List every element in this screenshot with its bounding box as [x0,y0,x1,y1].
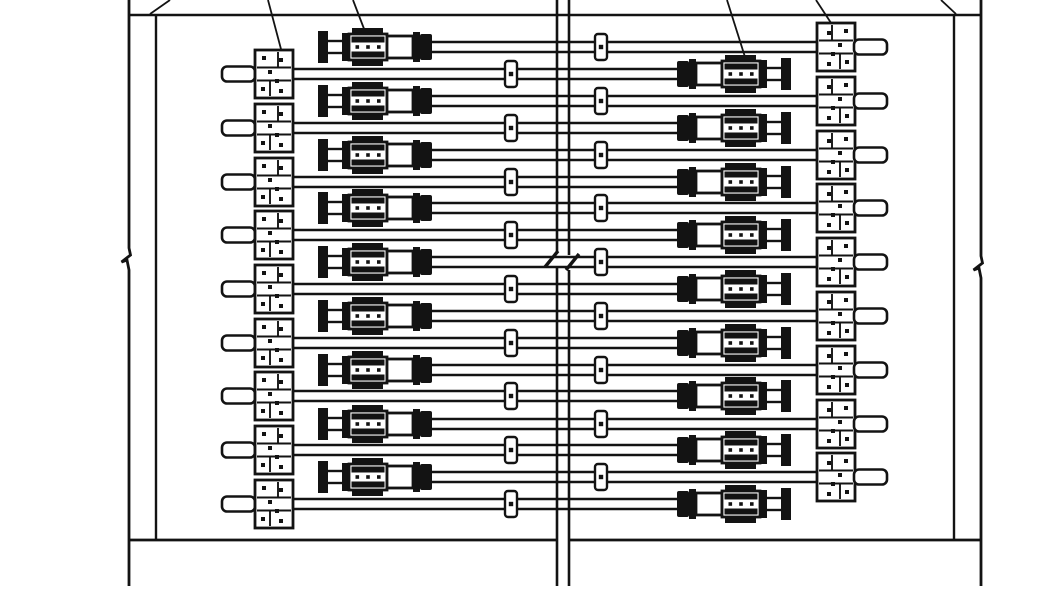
turnbuckle-dot [739,180,743,184]
anchor-plate-body [817,184,855,232]
rod-assembly-row [222,211,791,259]
turnbuckle-dot [739,502,743,506]
anchor-rod-stub [222,67,255,82]
turnbuckle [677,109,791,147]
anchor-plate [817,346,855,394]
turnbuckle [318,189,432,227]
anchor-bolt-dot [261,517,265,521]
rod-coupler-pin [599,45,603,49]
anchor-bolt-dot [844,406,848,410]
anchor-bolt-dot [844,244,848,248]
rod-assembly-row [318,346,887,394]
turnbuckle-open-body [696,439,722,461]
turnbuckle-block-band [725,172,758,178]
rod-coupler [595,411,607,437]
turnbuckle-end-nut [781,112,791,144]
anchor-bolt-dot [262,378,266,382]
anchor-plate-body [817,400,855,448]
turnbuckle-block-band [352,306,385,312]
turnbuckle-open-body [387,413,413,435]
turnbuckle-dot [366,314,370,318]
anchor-bolt-dot [827,62,831,66]
anchor-bolt-dot [279,358,283,362]
anchor-bolt-dot [831,160,835,164]
anchor-plate [817,400,855,448]
turnbuckle-dot [366,260,370,264]
turnbuckle-block-band [352,252,385,258]
anchor-plate [817,131,855,179]
rod-assembly-rows [222,23,887,528]
anchor-bolt-dot [279,112,283,116]
turnbuckle-block-band [352,375,385,381]
turnbuckle-end-nut [781,488,791,520]
engineering-drawing-page [0,0,1064,600]
turnbuckle [677,55,791,93]
turnbuckle [677,163,791,201]
anchor-rod-stub [854,40,887,55]
turnbuckle-dot [356,475,360,479]
anchor-bolt-dot [845,168,849,172]
turnbuckle-dot [739,287,743,291]
anchor-bolt-dot [827,408,831,412]
anchor-bolt-dot [275,348,279,352]
rod-assembly-row [222,319,791,367]
turnbuckle-dot [366,45,370,49]
anchor-bolt-dot [275,401,279,405]
turnbuckle-dot [377,475,381,479]
turnbuckle-end-nut [781,273,791,305]
turnbuckle-dot [366,368,370,372]
anchor-bolt-dot [262,486,266,490]
turnbuckle-open-body [387,90,413,112]
anchor-plate-body [817,23,855,71]
anchor-bolt-dot [275,509,279,513]
turnbuckle-block-band [352,213,385,219]
rod-assembly-row [222,50,791,98]
turnbuckle-collar [760,221,767,249]
anchor-bolt-dot [268,285,272,289]
anchor-plate [817,238,855,286]
anchor-bolt-dot [845,60,849,64]
turnbuckle [677,431,791,469]
anchor-bolt-dot [827,300,831,304]
anchor-bolt-dot [845,383,849,387]
rod-coupler-pin [599,99,603,103]
rod-coupler [505,491,517,517]
anchor-bolt-dot [279,465,283,469]
turnbuckle-dot [377,314,381,318]
turnbuckle-end-nut [781,219,791,251]
rod-coupler [505,169,517,195]
turnbuckle-block-band [352,414,385,420]
anchor-bolt-dot [827,85,831,89]
turnbuckle-collar [760,60,767,88]
anchor-bolt-dot [279,273,283,277]
anchor-plate [817,184,855,232]
turnbuckle-block-band [725,440,758,446]
anchor-plate [255,211,293,259]
anchor-bolt-dot [279,143,283,147]
turnbuckle-nut [420,357,432,383]
anchor-bolt-dot [831,482,835,486]
anchor-bolt-dot [268,124,272,128]
turnbuckle-block-band [725,386,758,392]
turnbuckle-collar [760,436,767,464]
turnbuckle-nut [677,437,689,463]
rod-coupler [595,34,607,60]
rod-coupler-pin [599,206,603,210]
turnbuckle [677,324,791,362]
anchor-bolt-dot [831,52,835,56]
anchor-plate [255,480,293,528]
rod-coupler [505,222,517,248]
turnbuckle-dot [739,233,743,237]
turnbuckle-open-body [696,171,722,193]
anchor-bolt-dot [268,231,272,235]
rod-assembly-row [318,184,887,232]
turnbuckle-block-band [352,145,385,151]
anchor-bolt-dot [275,455,279,459]
turnbuckle-open-body [387,36,413,58]
anchor-bolt-dot [827,116,831,120]
anchor-rod-stub [854,255,887,270]
anchor-bolt-dot [831,213,835,217]
turnbuckle-dot [356,45,360,49]
turnbuckle-end-nut [781,58,791,90]
anchor-bolt-dot [845,275,849,279]
turnbuckle-block-band [352,198,385,204]
rod-coupler [505,330,517,356]
joint-break-tick-left [545,251,558,267]
turnbuckle [318,405,432,443]
turnbuckle-end-nut [781,166,791,198]
rod-assembly-row [222,426,791,474]
anchor-plate-body [817,131,855,179]
anchor-rod-stub [854,470,887,485]
anchor-bolt-dot [262,271,266,275]
anchor-bolt-dot [279,519,283,523]
turnbuckle-collar [413,247,420,277]
turnbuckle-block-band [725,294,758,300]
anchor-bolt-dot [845,437,849,441]
anchor-bolt-dot [844,190,848,194]
turnbuckle-dot [377,368,381,372]
turnbuckle-dot [750,126,754,130]
leader-line-1 [150,0,170,14]
turnbuckle-dot [729,394,733,398]
leader-line-6 [941,0,956,14]
turnbuckle-open-body [696,224,722,246]
turnbuckle-dot [729,233,733,237]
leader-line-4 [727,0,745,57]
turnbuckle-collar [413,193,420,223]
anchor-bolt-dot [279,166,283,170]
rod-assembly-row [318,23,887,71]
anchor-bolt-dot [838,151,842,155]
anchor-rod-stub [854,201,887,216]
anchor-rod-stub [222,228,255,243]
anchor-bolt-dot [261,248,265,252]
anchor-plate-body [255,372,293,420]
rod-coupler [595,195,607,221]
anchor-bolt-dot [268,178,272,182]
anchor-bolt-dot [279,380,283,384]
turnbuckle-end-nut [318,246,328,278]
rod-coupler-pin [509,126,513,130]
anchor-bolt-dot [261,141,265,145]
anchor-bolt-dot [262,325,266,329]
anchor-plate-body [817,238,855,286]
turnbuckle-open-body [696,332,722,354]
turnbuckle-nut [677,491,689,517]
anchor-bolt-dot [838,420,842,424]
anchor-bolt-dot [827,139,831,143]
turnbuckle-collar [760,114,767,142]
turnbuckle-block-band [352,37,385,43]
anchor-plate [255,104,293,152]
turnbuckle [677,216,791,254]
turnbuckle-end-nut [318,139,328,171]
turnbuckle-collar [413,409,420,439]
turnbuckle-dot [750,341,754,345]
turnbuckle-nut [420,411,432,437]
anchor-plate-body [255,480,293,528]
turnbuckle-end-nut [318,192,328,224]
turnbuckle-dot [377,206,381,210]
turnbuckle-end-nut [318,85,328,117]
turnbuckle-block-band [725,187,758,193]
anchor-bolt-dot [845,114,849,118]
turnbuckle-open-body [696,385,722,407]
rod-assembly-row [318,77,887,125]
anchor-bolt-dot [275,187,279,191]
turnbuckle-nut [420,34,432,60]
turnbuckle-block-band [725,118,758,124]
anchor-bolt-dot [827,492,831,496]
turnbuckle-dot [366,153,370,157]
anchor-plate [817,453,855,501]
rod-coupler-pin [509,502,513,506]
turnbuckle-dot [356,368,360,372]
anchor-bolt-dot [279,250,283,254]
turnbuckle-end-nut [318,408,328,440]
anchor-bolt-dot [261,463,265,467]
anchor-bolt-dot [279,434,283,438]
turnbuckle-block-band [352,482,385,488]
turnbuckle-open-body [696,278,722,300]
rod-assembly-row [222,265,791,313]
turnbuckle [318,82,432,120]
anchor-bolt-dot [827,170,831,174]
anchor-plate-body [255,265,293,313]
rod-coupler [505,61,517,87]
anchor-bolt-dot [279,58,283,62]
turnbuckle-nut [677,169,689,195]
turnbuckle-block-band [725,348,758,354]
turnbuckle-nut [677,115,689,141]
turnbuckle-dot [739,341,743,345]
turnbuckle-nut [420,88,432,114]
turnbuckle [318,136,432,174]
turnbuckle-nut [420,195,432,221]
anchor-bolt-dot [261,409,265,413]
turnbuckle-nut [420,249,432,275]
turnbuckle-nut [677,222,689,248]
turnbuckle-nut [420,464,432,490]
turnbuckle-dot [366,206,370,210]
anchor-bolt-dot [262,164,266,168]
rod-coupler-pin [599,314,603,318]
turnbuckle-dot [750,180,754,184]
rod-coupler [595,142,607,168]
turnbuckle-block-band [352,467,385,473]
turnbuckle-block-band [352,321,385,327]
turnbuckle-dot [729,126,733,130]
anchor-bolt-dot [831,321,835,325]
rod-coupler-pin [509,72,513,76]
anchor-bolt-dot [827,439,831,443]
anchor-plate-body [817,346,855,394]
turnbuckle-block-band [352,160,385,166]
turnbuckle [318,458,432,496]
anchor-rod-stub [222,121,255,136]
anchor-bolt-dot [831,106,835,110]
turnbuckle-dot [739,448,743,452]
turnbuckle-block-band [725,333,758,339]
anchor-bolt-dot [262,432,266,436]
turnbuckle-open-body [387,305,413,327]
turnbuckle [677,485,791,523]
anchor-bolt-dot [275,79,279,83]
anchor-bolt-dot [844,29,848,33]
anchor-plate-body [255,158,293,206]
anchor-bolt-dot [279,327,283,331]
turnbuckle-block-band [725,494,758,500]
turnbuckle-collar [413,301,420,331]
anchor-bolt-dot [845,490,849,494]
turnbuckle-block-band [352,106,385,112]
anchor-bolt-dot [261,87,265,91]
turnbuckle-end-nut [318,461,328,493]
turnbuckle-dot [739,72,743,76]
anchor-bolt-dot [262,217,266,221]
turnbuckle-block-band [352,360,385,366]
rod-coupler-pin [509,180,513,184]
rod-assembly-row [222,480,791,528]
turnbuckle [318,351,432,389]
turnbuckle-block-band [725,455,758,461]
anchor-bolt-dot [279,411,283,415]
anchor-plate-body [817,77,855,125]
turnbuckle-collar [413,32,420,62]
anchor-bolt-dot [838,97,842,101]
turnbuckle-open-body [387,359,413,381]
anchor-plate [255,50,293,98]
turnbuckle-open-body [387,144,413,166]
rod-coupler-pin [509,448,513,452]
anchor-rod-stub [854,417,887,432]
turnbuckle-dot [729,448,733,452]
anchor-bolt-dot [838,204,842,208]
anchor-plate-body [255,211,293,259]
anchor-bolt-dot [275,294,279,298]
anchor-bolt-dot [275,240,279,244]
right-outer-line [974,0,983,586]
rod-coupler [595,88,607,114]
turnbuckle-nut [420,142,432,168]
turnbuckle-collar [760,275,767,303]
rod-coupler-pin [509,233,513,237]
turnbuckle-collar [760,382,767,410]
anchor-rod-stub [854,309,887,324]
anchor-plate-body [817,453,855,501]
turnbuckle-end-nut [318,300,328,332]
turnbuckle-dot [750,233,754,237]
anchor-bolt-dot [831,429,835,433]
turnbuckle-dot [377,153,381,157]
rod-coupler-pin [599,260,603,264]
turnbuckle-block-band [352,267,385,273]
turnbuckle-end-nut [781,434,791,466]
turnbuckle-dot [750,287,754,291]
rod-coupler [505,437,517,463]
rod-assembly-row [318,292,887,340]
rod-coupler [505,276,517,302]
turnbuckle-block-band [725,64,758,70]
anchor-bolt-dot [827,246,831,250]
turnbuckle-open-body [387,197,413,219]
anchor-plate [255,319,293,367]
turnbuckle-block-band [725,509,758,515]
anchor-rod-stub [222,497,255,512]
rod-coupler [595,249,607,275]
turnbuckle-dot [750,502,754,506]
anchor-bolt-dot [827,223,831,227]
anchor-bolt-dot [261,195,265,199]
turnbuckle-dot [729,341,733,345]
anchor-bolt-dot [844,83,848,87]
anchor-plate-body [817,292,855,340]
rod-assembly-row [222,104,791,152]
anchor-plate [817,23,855,71]
anchor-bolt-dot [844,298,848,302]
anchor-plate-body [255,104,293,152]
anchor-bolt-dot [279,197,283,201]
anchor-plate [255,426,293,474]
turnbuckle-dot [377,45,381,49]
turnbuckle-dot [729,287,733,291]
turnbuckle-block-band [725,133,758,139]
rod-assembly-row [318,131,887,179]
turnbuckle [677,270,791,308]
anchor-bolt-dot [268,446,272,450]
turnbuckle-dot [739,394,743,398]
anchor-plate [255,372,293,420]
anchor-rod-stub [854,148,887,163]
turnbuckle-dot [750,394,754,398]
turnbuckle-collar [413,140,420,170]
left-outer-line [122,0,131,586]
anchor-bolt-dot [262,110,266,114]
turnbuckle-nut [677,330,689,356]
turnbuckle-open-body [696,493,722,515]
rod-coupler [595,303,607,329]
anchor-rod-stub [854,94,887,109]
anchor-bolt-dot [827,192,831,196]
turnbuckle [677,377,791,415]
anchor-bolt-dot [838,258,842,262]
turnbuckle-dot [377,260,381,264]
